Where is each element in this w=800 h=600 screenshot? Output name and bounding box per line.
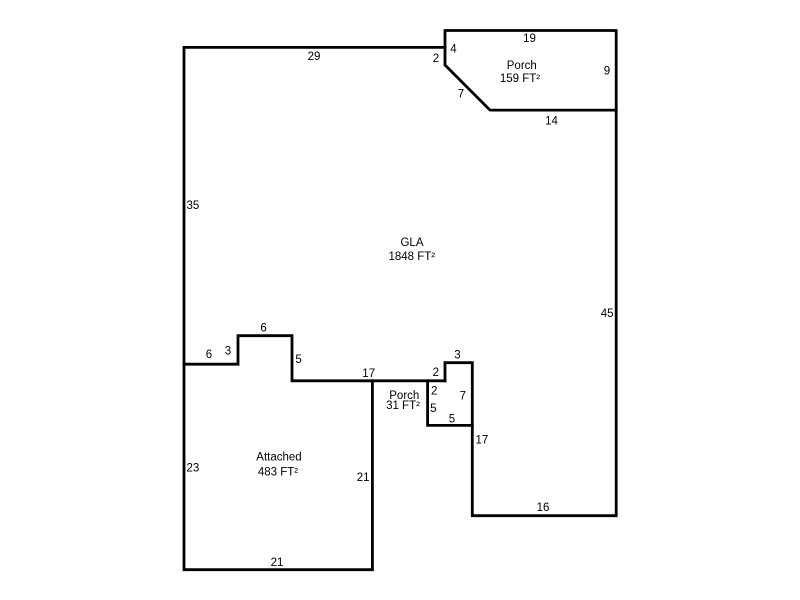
svg-text:Attached: Attached xyxy=(256,452,301,464)
svg-text:31 FT²: 31 FT² xyxy=(386,400,420,412)
svg-text:2: 2 xyxy=(433,53,439,65)
svg-text:17: 17 xyxy=(476,435,489,447)
svg-text:2: 2 xyxy=(433,367,439,379)
svg-text:3: 3 xyxy=(225,346,231,358)
svg-text:17: 17 xyxy=(362,368,375,380)
svg-text:21: 21 xyxy=(271,557,284,569)
svg-text:159 FT²: 159 FT² xyxy=(500,73,540,85)
svg-text:4: 4 xyxy=(450,44,457,56)
svg-text:9: 9 xyxy=(604,66,610,78)
svg-text:6: 6 xyxy=(206,349,212,361)
svg-text:16: 16 xyxy=(537,502,550,514)
svg-text:45: 45 xyxy=(601,308,614,320)
svg-text:483 FT²: 483 FT² xyxy=(258,467,298,479)
svg-text:21: 21 xyxy=(357,472,370,484)
svg-text:5: 5 xyxy=(430,403,436,415)
svg-text:35: 35 xyxy=(187,200,200,212)
svg-text:1848 FT²: 1848 FT² xyxy=(388,251,435,263)
svg-text:Porch: Porch xyxy=(507,60,537,72)
svg-text:2: 2 xyxy=(431,386,437,398)
svg-text:6: 6 xyxy=(260,323,266,335)
svg-text:19: 19 xyxy=(523,33,536,45)
svg-text:7: 7 xyxy=(458,89,464,101)
svg-text:5: 5 xyxy=(295,354,301,366)
svg-text:5: 5 xyxy=(449,414,455,426)
svg-text:23: 23 xyxy=(187,463,200,475)
svg-text:3: 3 xyxy=(454,350,460,362)
svg-text:14: 14 xyxy=(545,116,558,128)
svg-text:29: 29 xyxy=(308,51,321,63)
svg-text:GLA: GLA xyxy=(400,237,423,249)
svg-text:7: 7 xyxy=(460,391,466,403)
